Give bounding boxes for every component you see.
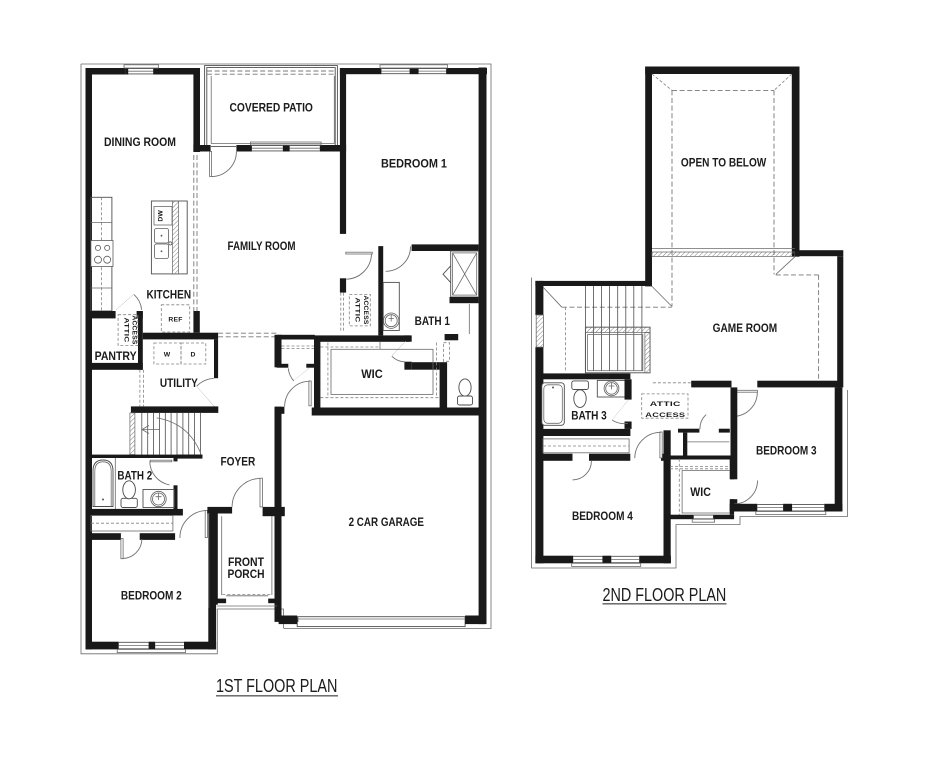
svg-text:OPEN TO BELOW: OPEN TO BELOW [681, 157, 766, 170]
svg-text:ACCESS: ACCESS [362, 296, 369, 325]
svg-text:BATH 1: BATH 1 [415, 315, 451, 328]
svg-text:ATTIC: ATTIC [354, 298, 361, 323]
svg-text:BATH 3: BATH 3 [571, 409, 607, 422]
svg-text:WIC: WIC [361, 368, 383, 381]
svg-text:D: D [190, 352, 195, 359]
svg-text:BEDROOM 4: BEDROOM 4 [572, 510, 633, 523]
svg-text:FOYER: FOYER [221, 456, 256, 469]
svg-text:ATTIC: ATTIC [650, 401, 681, 408]
svg-text:BEDROOM 3: BEDROOM 3 [756, 445, 817, 458]
svg-text:PORCH: PORCH [228, 568, 265, 581]
svg-text:GAME ROOM: GAME ROOM [713, 322, 778, 335]
svg-text:COVERED PATIO: COVERED PATIO [230, 102, 313, 115]
svg-text:KITCHEN: KITCHEN [147, 289, 192, 302]
svg-text:DW: DW [158, 210, 165, 222]
svg-text:WIC: WIC [690, 486, 711, 499]
svg-text:FAMILY ROOM: FAMILY ROOM [228, 240, 296, 253]
svg-text:ACCESS: ACCESS [130, 316, 137, 345]
svg-text:BEDROOM 1: BEDROOM 1 [381, 157, 448, 170]
svg-text:W: W [164, 352, 171, 359]
svg-text:2ND FLOOR PLAN: 2ND FLOOR PLAN [603, 584, 727, 605]
svg-text:PANTRY: PANTRY [95, 350, 137, 363]
svg-text:REF: REF [168, 316, 182, 323]
svg-text:DINING ROOM: DINING ROOM [104, 136, 176, 149]
svg-text:UTILITY: UTILITY [160, 377, 198, 390]
svg-text:ACCESS: ACCESS [645, 412, 685, 419]
svg-text:2 CAR GARAGE: 2 CAR GARAGE [349, 516, 425, 529]
svg-text:1ST FLOOR PLAN: 1ST FLOOR PLAN [216, 675, 338, 696]
svg-text:BATH 2: BATH 2 [117, 470, 152, 483]
svg-text:BEDROOM 2: BEDROOM 2 [121, 590, 182, 603]
svg-text:ATTIC: ATTIC [123, 318, 130, 343]
